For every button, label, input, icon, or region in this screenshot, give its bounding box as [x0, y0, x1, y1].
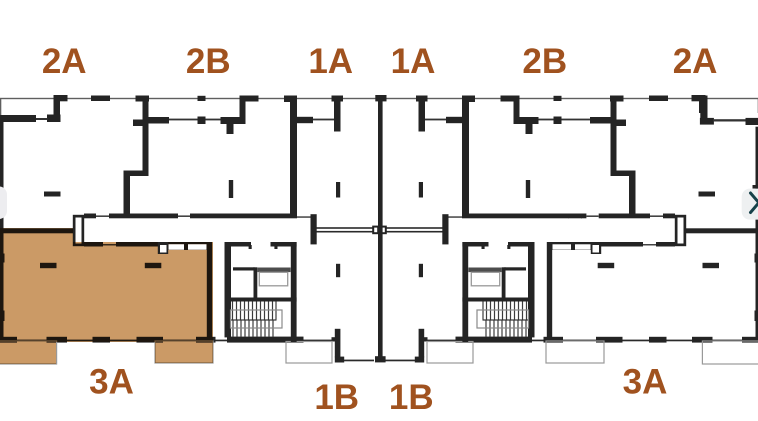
- svg-text:1A: 1A: [391, 42, 436, 81]
- svg-text:2B: 2B: [186, 42, 231, 81]
- svg-text:1B: 1B: [314, 378, 359, 417]
- svg-text:1A: 1A: [308, 42, 353, 81]
- svg-text:1B: 1B: [389, 378, 434, 417]
- svg-text:2B: 2B: [522, 42, 567, 81]
- svg-text:3A: 3A: [89, 363, 134, 402]
- svg-text:2A: 2A: [673, 42, 718, 81]
- svg-text:2A: 2A: [42, 42, 87, 81]
- svg-text:3A: 3A: [623, 363, 668, 402]
